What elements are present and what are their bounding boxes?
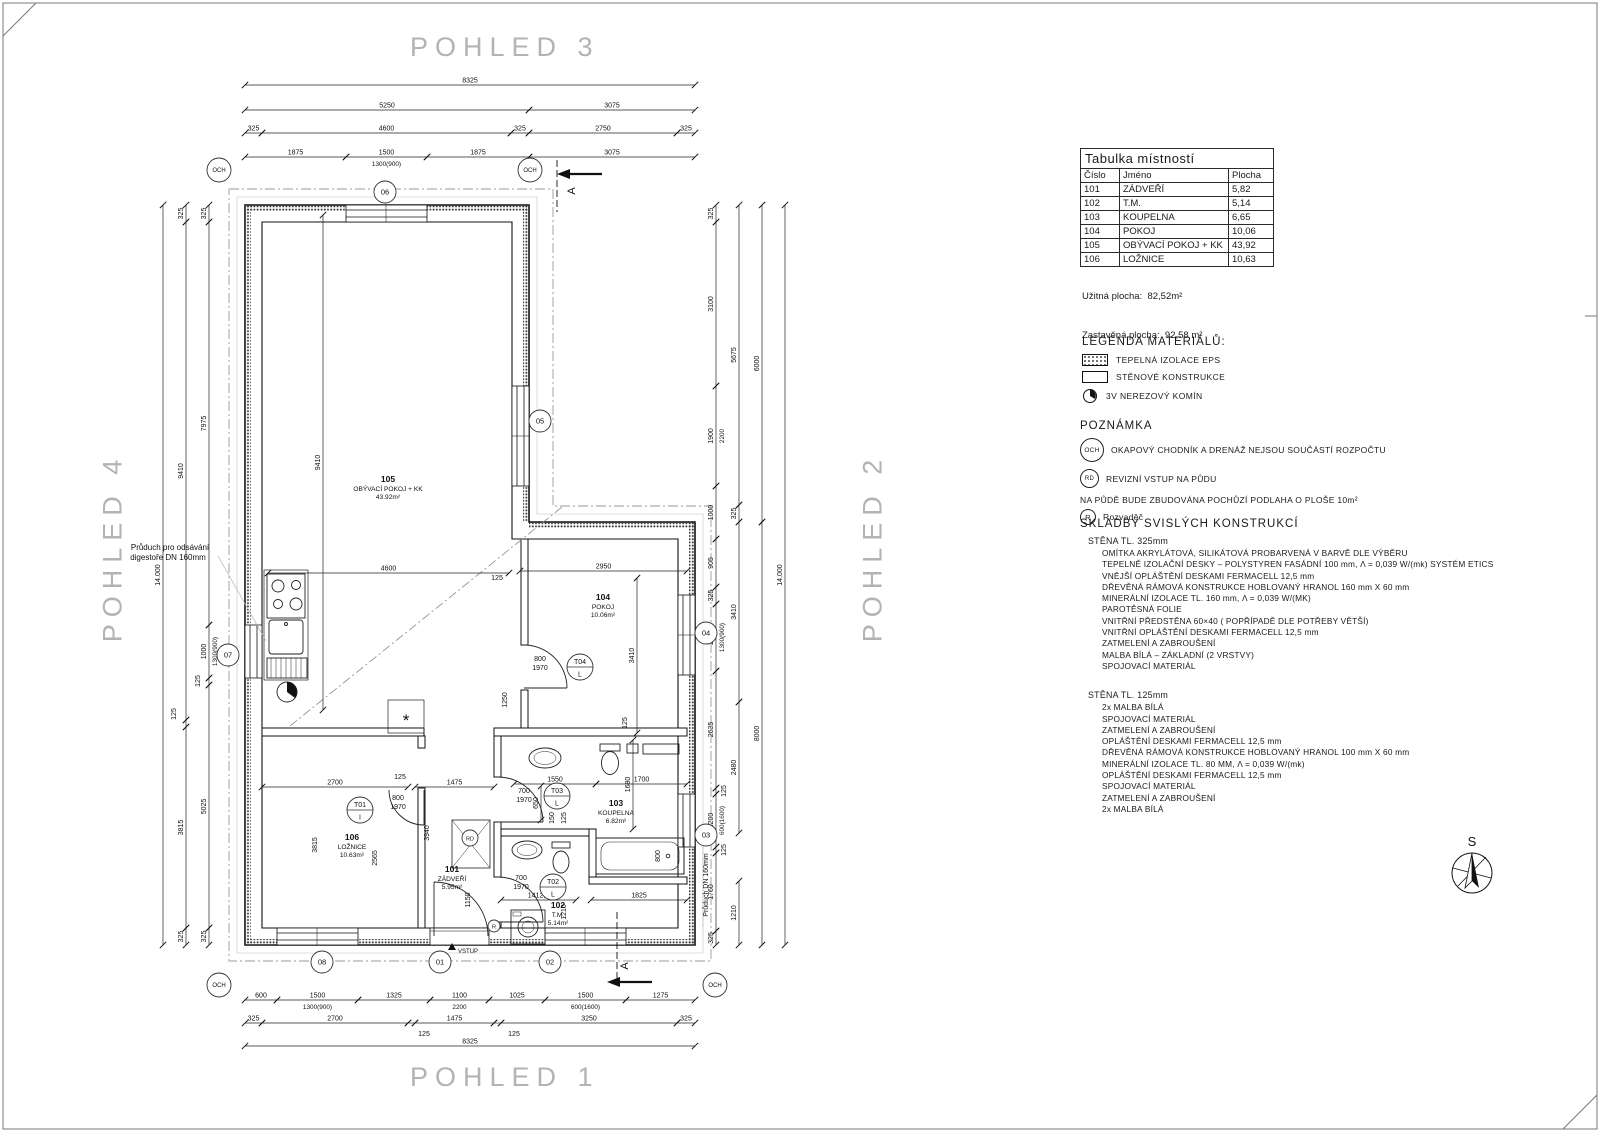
dimension-label: 3100 [708, 296, 715, 312]
dimension-label: 325 [248, 1016, 260, 1023]
dimension-leader-label: 150 [549, 812, 556, 824]
dimension-label: 2700 [327, 1016, 343, 1023]
plan-text: Průduch DN 160mm [702, 853, 710, 917]
room-name: T.M. [552, 912, 565, 919]
dimension-label: 325 [178, 208, 185, 220]
dimension-sublabel: 600(1600) [719, 806, 726, 835]
dimension-leader-label: 125 [561, 812, 568, 824]
dimension-label: 3250 [581, 1016, 597, 1023]
dimension-label: 3075 [604, 150, 620, 157]
door-tag-letter: I [359, 815, 361, 822]
dimension-label: 8000 [754, 726, 761, 742]
dimension-label: 1475 [447, 1016, 463, 1023]
dimension-label: 5675 [731, 347, 738, 363]
dimension-leader-label: 1970 [390, 804, 406, 811]
dimension-leader-label: 125 [622, 717, 629, 729]
plan-text: S [1468, 834, 1477, 849]
dimension-label: 9410 [178, 463, 185, 479]
dimension-sublabel: 1300(900) [372, 161, 401, 168]
marker-label: OCH [212, 983, 225, 989]
dimension-label: 4600 [379, 126, 395, 133]
dimension-leader-label: 800 [655, 850, 662, 862]
room-name: OBÝVACÍ POKOJ + KK [353, 484, 423, 493]
marker-label: RD [466, 837, 474, 843]
door-tag-letter: L [555, 801, 559, 808]
room-name: KOUPELNA [598, 810, 635, 817]
dimension-label: 6000 [754, 356, 761, 372]
door-tag-id: T04 [574, 659, 586, 666]
room-name: LOŽNICE [338, 842, 367, 851]
dimension-label: 325 [201, 208, 208, 220]
dimension-label: 1825 [631, 893, 647, 900]
marker-label: 08 [318, 958, 326, 967]
dimension-leader-label: 800 [392, 795, 404, 802]
dimension-label: 325 [201, 931, 208, 943]
dimension-leader-label: 125 [721, 844, 728, 856]
dimension-label: 1210 [731, 905, 738, 921]
plan-text: A [619, 962, 631, 970]
window-03 [678, 794, 695, 847]
dimension-sublabel: 2200 [452, 1004, 467, 1011]
dimension-label: 1500 [578, 993, 594, 1000]
marker-label: 06 [381, 188, 389, 197]
dimension-label: 325 [708, 590, 715, 602]
dimension-label: 3410 [629, 648, 636, 664]
marker-label: 03 [702, 831, 710, 840]
dimension-label: 2635 [708, 722, 715, 738]
floor-plan: 8325525030753254600325275032518751500130… [0, 0, 1600, 1132]
dimension-label: 3815 [178, 820, 185, 836]
dimension-label: 3075 [604, 103, 620, 110]
plan-text: VSTUP [458, 949, 478, 955]
room-number: 105 [381, 474, 395, 484]
plan-text: digestoře DN 160mm [130, 553, 206, 562]
dimension-label: 325 [708, 932, 715, 944]
dimension-leader-label: 3815 [312, 837, 319, 853]
dimension-label: 1680 [625, 777, 632, 793]
dimension-label: 325 [680, 126, 692, 133]
plan-text: Průduch pro odsávání [131, 543, 210, 552]
door-tag-letter: L [578, 672, 582, 679]
room-number: 104 [596, 592, 610, 602]
marker-label: OCH [212, 168, 225, 174]
dimension-label: 2480 [731, 760, 738, 776]
dimension-label: 325 [248, 126, 260, 133]
dimension-label: 905 [708, 557, 715, 569]
dimension-leader-label: 125 [491, 575, 503, 582]
dimension-label: 325 [708, 208, 715, 220]
dimension-label: 7975 [201, 416, 208, 432]
window-02 [545, 928, 626, 945]
dimension-label: 14.000 [155, 564, 162, 586]
room-number: 101 [445, 864, 459, 874]
door-tag-id: T02 [547, 879, 559, 886]
dimension-label: 1475 [447, 780, 463, 787]
room-number: 102 [551, 900, 565, 910]
dimension-label: 325 [731, 508, 738, 520]
dimension-leader-label: 125 [171, 708, 178, 720]
dimension-label: 1100 [452, 993, 467, 1000]
dimension-leader-label: 1970 [516, 797, 532, 804]
door-tag-id: T01 [354, 802, 366, 809]
dimension-label: 3410 [731, 604, 738, 620]
dimension-leader-label: 3940 [424, 825, 431, 841]
door-tag-letter: L [551, 892, 555, 899]
plan-text: A [566, 187, 578, 195]
dimension-label: 1000 [201, 644, 208, 660]
drawing-sheet: POHLED 3 POHLED 1 POHLED 4 POHLED 2 Tabu… [0, 0, 1600, 1132]
marker-label: 02 [546, 958, 554, 967]
dimension-label: 325 [680, 1016, 692, 1023]
window-08 [277, 928, 358, 945]
marker-label: 05 [536, 417, 544, 426]
dimension-label: 325 [178, 931, 185, 943]
dimension-leader-label: 125 [721, 785, 728, 797]
dimension-label: 9410 [315, 455, 322, 471]
dimension-label: 5025 [201, 799, 208, 815]
dimension-leader-label: 1150 [465, 892, 472, 907]
dimension-label: 325 [514, 126, 526, 133]
dimension-label: 5250 [379, 103, 395, 110]
window-07 [245, 625, 262, 678]
dimension-sublabel: 600(1600) [571, 1004, 600, 1011]
dimension-label: 1875 [470, 150, 486, 157]
marker-label: OCH [708, 983, 721, 989]
marker-label: OCH [523, 168, 536, 174]
room-area: 10.06m² [591, 612, 616, 619]
entrance-opening [430, 928, 489, 945]
dimension-label: 1875 [288, 150, 304, 157]
dimension-sublabel: 2200 [719, 428, 726, 443]
dimension-label: 1900 [708, 428, 715, 444]
room-name: POKOJ [592, 604, 614, 611]
dimension-leader-label: 800 [534, 656, 546, 663]
dimension-sublabel: 1300(900) [719, 623, 726, 652]
dimension-leader-label: 700 [515, 875, 527, 882]
dimension-label: 1500 [379, 150, 395, 157]
dimension-label: 8325 [462, 1039, 478, 1046]
dimension-label: 1025 [509, 993, 525, 1000]
dimension-sublabel: 1300(900) [303, 1004, 332, 1011]
dimension-label: 1700 [634, 777, 650, 784]
dimension-label: 14.000 [777, 564, 784, 586]
room-area: 43.92m² [376, 494, 401, 501]
dimension-label: 2950 [596, 564, 612, 571]
dimension-leader-label: 125 [394, 774, 406, 781]
window-04 [678, 595, 695, 675]
dimension-leader-label: 1970 [532, 665, 548, 672]
dimension-label: 2750 [595, 126, 611, 133]
dimension-label: 1550 [547, 777, 563, 784]
dimension-leader-label: 700 [518, 788, 530, 795]
door-tag-id: T03 [551, 788, 563, 795]
room-area: 5.95m² [442, 884, 463, 891]
dimension-label: 2700 [327, 780, 343, 787]
room-number: 106 [345, 832, 359, 842]
dimension-label: 8325 [462, 78, 478, 85]
dimension-leader-label: 1970 [513, 884, 529, 891]
dimension-label: 600 [255, 993, 267, 1000]
window-05 [512, 386, 529, 486]
dimension-label: 1500 [310, 993, 326, 1000]
dimension-leader-label: 125 [418, 1031, 430, 1038]
dimension-label: 4600 [381, 566, 397, 573]
dimension-leader-label: 2565 [372, 850, 379, 866]
dimension-leader-label: 125 [195, 675, 202, 687]
dimension-label: 650 [533, 797, 540, 809]
compass-rose [1452, 853, 1492, 893]
dimension-label: 1275 [653, 993, 669, 1000]
dimension-label: 1000 [708, 505, 715, 521]
plan-text: * [403, 711, 410, 730]
marker-label: 01 [436, 958, 444, 967]
dimension-leader-label: 125 [508, 1031, 520, 1038]
marker-label: 07 [224, 651, 232, 660]
room-number: 103 [609, 798, 623, 808]
dimension-label: 1325 [386, 993, 402, 1000]
marker-label: 04 [702, 629, 710, 638]
room-area: 5.14m² [548, 920, 569, 927]
dimension-leader-label: 1250 [502, 692, 509, 708]
sheet-frame [3, 3, 1597, 1129]
room-area: 6.82m² [606, 818, 627, 825]
room-name: ZÁDVEŘÍ [438, 874, 467, 883]
marker-label: R [492, 925, 496, 931]
room-area: 10.63m² [340, 852, 365, 859]
window-06 [346, 205, 427, 222]
